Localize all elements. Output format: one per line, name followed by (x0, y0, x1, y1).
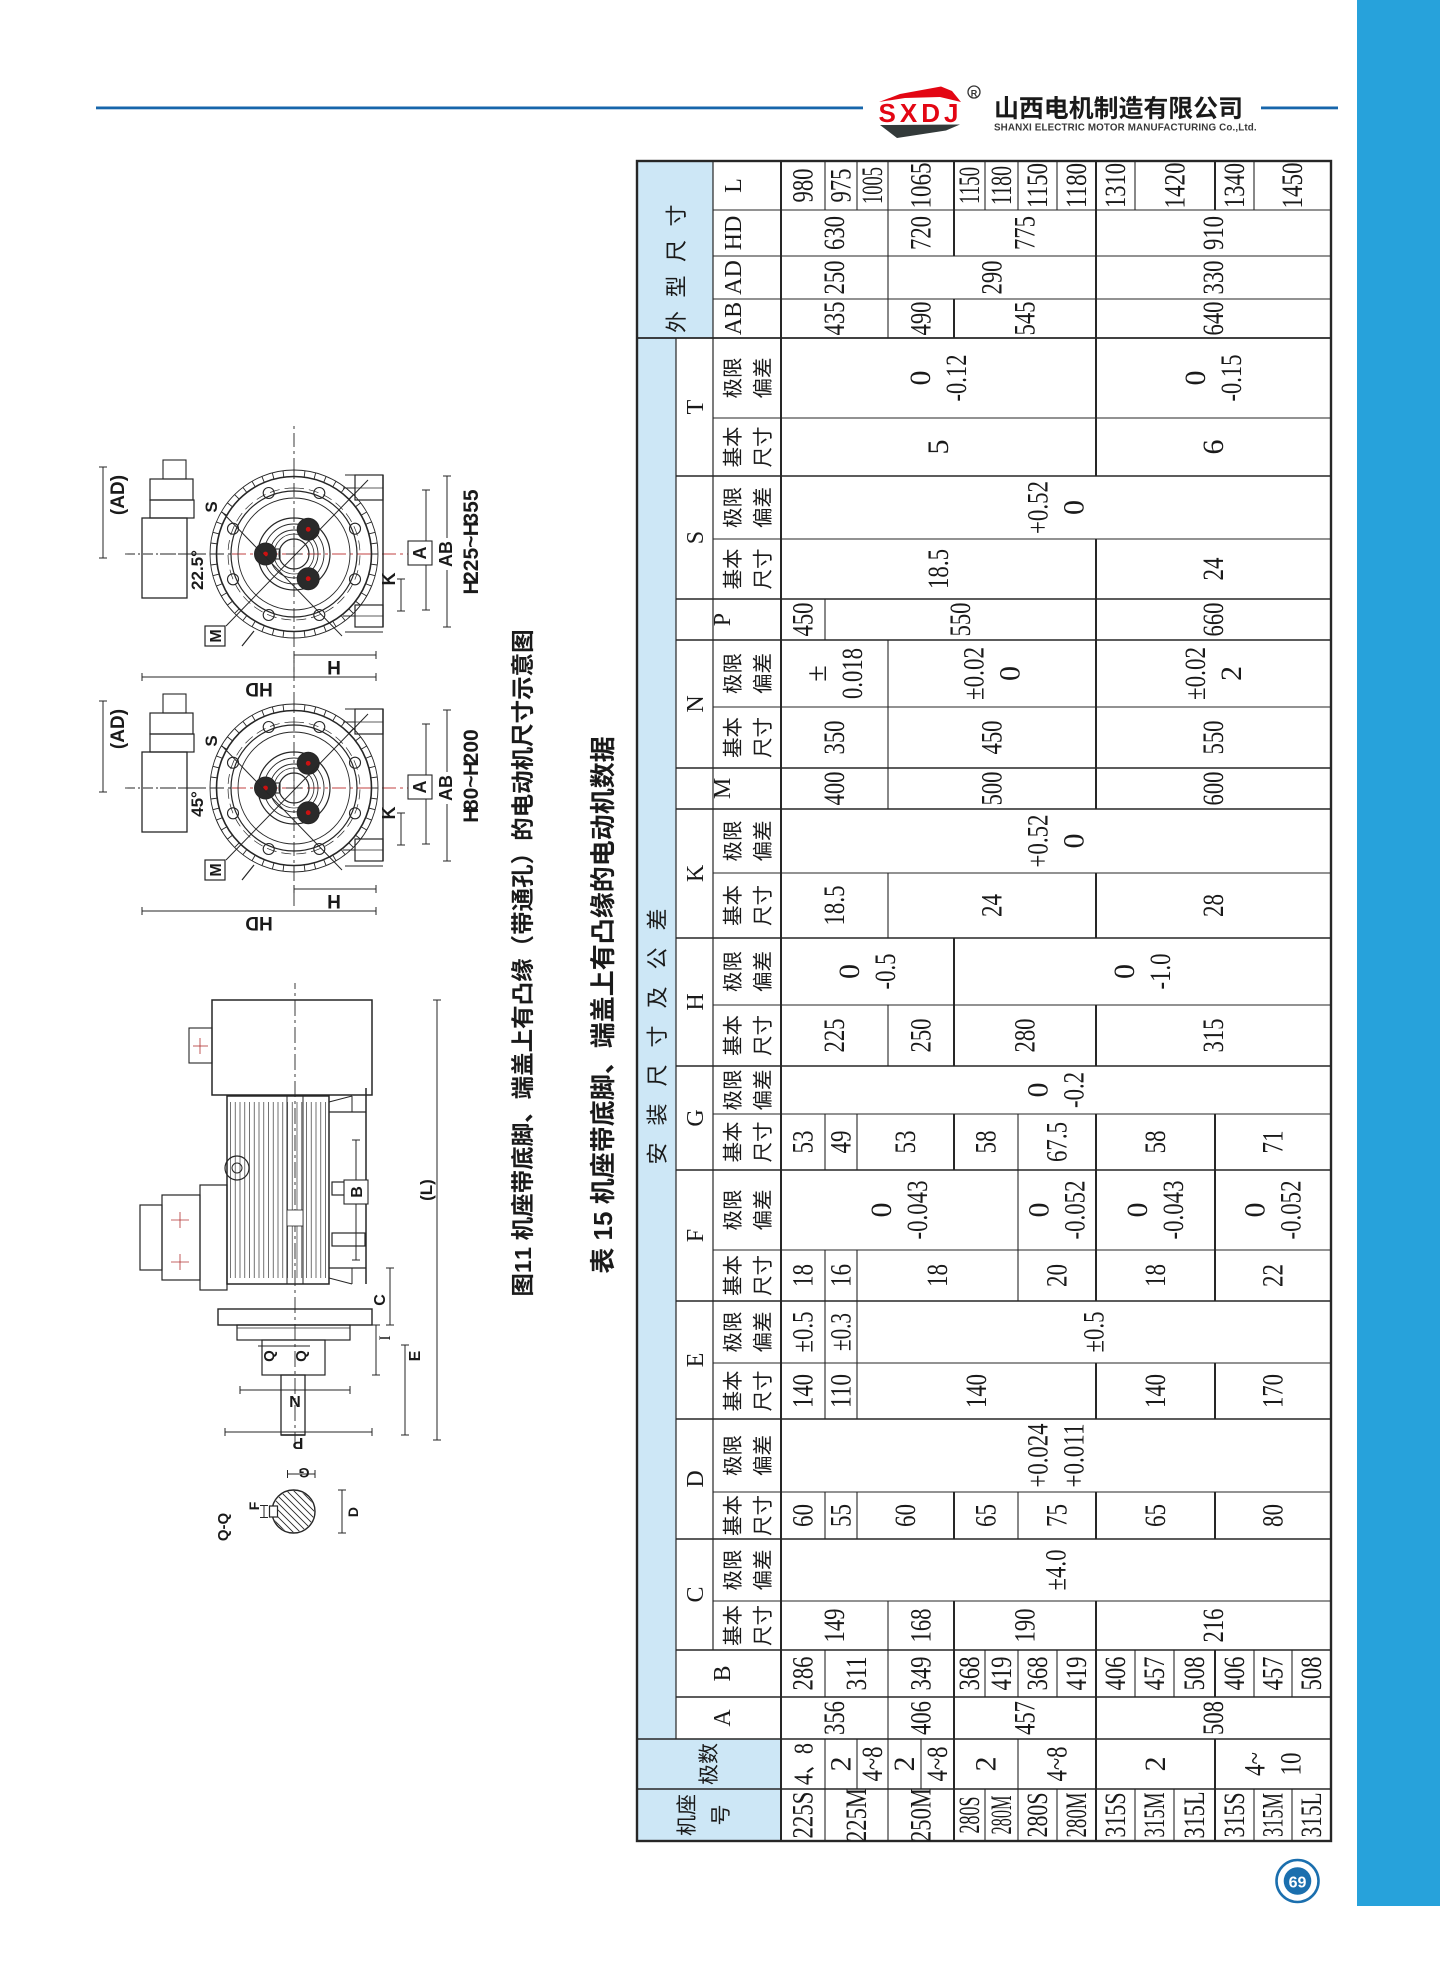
svg-text:±0.02: ±0.02 (958, 647, 991, 700)
svg-text:4~8: 4~8 (1041, 1747, 1074, 1782)
svg-text:M: M (208, 629, 225, 642)
svg-text:58: 58 (970, 1131, 1003, 1154)
svg-text:250: 250 (905, 1019, 938, 1053)
svg-text:419: 419 (1060, 1657, 1093, 1691)
svg-text:-0.5: -0.5 (869, 954, 902, 990)
svg-text:A: A (410, 547, 430, 560)
svg-text:Q: Q (261, 1350, 278, 1362)
svg-text:80: 80 (1257, 1504, 1290, 1527)
svg-text:K: K (683, 864, 709, 882)
svg-text:0: 0 (1058, 834, 1091, 849)
svg-text:C: C (683, 1586, 709, 1602)
svg-text:5: 5 (588, 1212, 618, 1226)
svg-text:16: 16 (825, 1264, 858, 1287)
svg-text:75: 75 (1041, 1504, 1074, 1527)
svg-text:250: 250 (818, 261, 851, 295)
svg-text:910: 910 (1197, 216, 1230, 250)
svg-text:8: 8 (789, 1743, 819, 1754)
svg-text:0: 0 (865, 1203, 898, 1218)
svg-text:225M: 225M (840, 1788, 873, 1842)
svg-text:A: A (410, 781, 430, 794)
svg-text:1150: 1150 (953, 167, 986, 204)
svg-text:N: N (683, 695, 709, 712)
svg-text:T: T (683, 399, 709, 414)
svg-text:0: 0 (460, 741, 483, 753)
svg-text:0: 0 (1058, 500, 1091, 515)
svg-text:F: F (683, 1229, 709, 1242)
svg-text:E: E (683, 1353, 709, 1368)
svg-text:315S: 315S (1218, 1793, 1251, 1838)
svg-text:630: 630 (818, 216, 851, 250)
svg-text:170: 170 (1257, 1374, 1290, 1408)
svg-text:225: 225 (818, 1019, 851, 1053)
svg-text:18.5: 18.5 (922, 549, 955, 589)
svg-text:18: 18 (921, 1264, 954, 1287)
svg-text:550: 550 (1197, 721, 1230, 755)
svg-text:0: 0 (904, 371, 937, 386)
svg-text:640: 640 (1197, 302, 1230, 336)
svg-text:D: D (683, 1470, 709, 1487)
svg-text:4~: 4~ (1239, 1752, 1272, 1776)
svg-text:I: I (377, 1335, 394, 1340)
svg-text:Q: Q (293, 1350, 310, 1362)
svg-text:1005: 1005 (856, 167, 889, 204)
svg-text:2: 2 (460, 753, 483, 765)
svg-text:G: G (298, 1465, 309, 1481)
svg-text:18: 18 (1139, 1264, 1172, 1287)
svg-text:F: F (246, 1501, 262, 1510)
svg-text:660: 660 (1197, 603, 1230, 637)
svg-text:5: 5 (922, 440, 955, 455)
svg-text:720: 720 (905, 216, 938, 250)
svg-text:18.5: 18.5 (818, 886, 851, 926)
svg-text:457: 457 (1257, 1657, 1290, 1691)
svg-text:±0.02: ±0.02 (1179, 647, 1212, 700)
svg-text:280S: 280S (1021, 1793, 1054, 1838)
svg-text:975: 975 (825, 169, 858, 203)
svg-text:286: 286 (787, 1657, 820, 1691)
svg-text:0: 0 (1239, 1203, 1272, 1218)
svg-text:2: 2 (1139, 1757, 1172, 1772)
svg-text:0: 0 (1179, 371, 1212, 386)
svg-text:H: H (327, 890, 341, 911)
svg-text:45°: 45° (188, 791, 207, 817)
svg-text:3: 3 (460, 513, 483, 525)
svg-text:AB: AB (436, 541, 456, 567)
svg-text:2: 2 (1215, 666, 1248, 681)
svg-text:600: 600 (1197, 772, 1230, 806)
svg-text:508: 508 (1197, 1701, 1230, 1735)
svg-text:-0.052: -0.052 (1059, 1181, 1092, 1240)
svg-text:1: 1 (510, 1260, 536, 1273)
svg-text:D: D (345, 1507, 361, 1517)
svg-text:315L: 315L (1295, 1793, 1328, 1838)
svg-text:190: 190 (1009, 1609, 1042, 1643)
svg-text:58: 58 (1139, 1131, 1172, 1154)
svg-text:4~8: 4~8 (921, 1747, 954, 1782)
svg-text:0.018: 0.018 (836, 648, 869, 699)
svg-text:HD: HD (245, 678, 272, 699)
svg-text:0: 0 (833, 964, 866, 979)
svg-text:0: 0 (460, 729, 483, 741)
svg-text:0: 0 (1022, 1083, 1055, 1098)
svg-text:(L): (L) (417, 1179, 436, 1201)
svg-text:508: 508 (1295, 1657, 1328, 1691)
svg-text:4: 4 (789, 1773, 819, 1785)
svg-text:500: 500 (976, 772, 1009, 806)
svg-text:1180: 1180 (985, 166, 1018, 205)
svg-text:R: R (971, 89, 978, 99)
svg-text:1180: 1180 (1060, 163, 1093, 208)
svg-text:5: 5 (460, 489, 483, 501)
svg-text:AB: AB (721, 302, 747, 335)
svg-text:20: 20 (1041, 1264, 1074, 1287)
svg-text:67.5: 67.5 (1041, 1122, 1074, 1162)
svg-text:419: 419 (985, 1657, 1018, 1691)
svg-text:550: 550 (944, 603, 977, 637)
svg-text:-0.2: -0.2 (1058, 1072, 1091, 1108)
svg-text:330: 330 (1197, 261, 1230, 295)
svg-text:406: 406 (1218, 1657, 1251, 1691)
svg-text:S: S (202, 501, 221, 512)
svg-text:1310: 1310 (1099, 163, 1132, 208)
svg-text:22: 22 (1257, 1264, 1290, 1287)
svg-text:S: S (683, 531, 709, 544)
svg-text:SXDJ: SXDJ (879, 98, 963, 128)
svg-text:C: C (372, 1294, 389, 1306)
svg-text:2: 2 (460, 571, 483, 583)
svg-text:+0.024: +0.024 (1022, 1424, 1055, 1488)
svg-text:22.5°: 22.5° (188, 550, 207, 590)
svg-text:65: 65 (970, 1504, 1003, 1527)
svg-text:1150: 1150 (1021, 163, 1054, 208)
svg-text:2: 2 (825, 1757, 858, 1772)
svg-text:545: 545 (1009, 302, 1042, 336)
svg-text:140: 140 (1139, 1374, 1172, 1408)
svg-text:M: M (710, 778, 736, 799)
svg-text:290: 290 (976, 261, 1009, 295)
svg-text:-0.043: -0.043 (901, 1181, 934, 1240)
svg-text:H: H (327, 656, 341, 677)
svg-text:349: 349 (905, 1657, 938, 1691)
svg-text:368: 368 (1021, 1657, 1054, 1691)
svg-text:K: K (379, 573, 399, 586)
svg-text:2: 2 (460, 560, 483, 572)
svg-text:315M: 315M (1257, 1793, 1290, 1837)
svg-text:±0.5: ±0.5 (787, 1312, 820, 1353)
svg-text:311: 311 (840, 1657, 873, 1691)
svg-text:5: 5 (460, 548, 483, 560)
svg-text:69: 69 (1289, 1875, 1307, 1892)
svg-text:24: 24 (1197, 558, 1230, 581)
svg-text:53: 53 (889, 1131, 922, 1154)
svg-text:1065: 1065 (905, 163, 938, 209)
svg-text:K: K (379, 807, 399, 820)
svg-text:-1.0: -1.0 (1144, 954, 1177, 990)
svg-text:0: 0 (460, 788, 483, 800)
svg-text:Q-Q: Q-Q (215, 1513, 232, 1542)
svg-text:53: 53 (787, 1131, 820, 1154)
svg-text:HD: HD (721, 216, 747, 251)
svg-text:HD: HD (245, 912, 272, 933)
svg-text:280S: 280S (953, 1797, 986, 1834)
svg-text:315S: 315S (1099, 1793, 1132, 1838)
svg-text:450: 450 (976, 721, 1009, 755)
svg-text:1340: 1340 (1218, 163, 1251, 208)
svg-text:-0.15: -0.15 (1215, 355, 1248, 402)
svg-text:±: ± (800, 665, 833, 681)
svg-text:350: 350 (818, 721, 851, 755)
svg-text:280: 280 (1009, 1019, 1042, 1053)
svg-text:356: 356 (818, 1701, 851, 1735)
svg-text:±0.5: ±0.5 (1078, 1312, 1111, 1353)
svg-text:SHANXI ELECTRIC MOTOR MANUF: SHANXI ELECTRIC MOTOR MANUFACTURING Co.,… (994, 123, 1257, 134)
svg-text:280M: 280M (1060, 1793, 1093, 1838)
svg-text:1450: 1450 (1276, 163, 1309, 209)
svg-text:N: N (289, 1392, 301, 1409)
svg-text:P: P (710, 613, 736, 626)
svg-text:400: 400 (818, 772, 851, 806)
svg-text:980: 980 (787, 169, 820, 203)
svg-text:65: 65 (1139, 1504, 1172, 1527)
svg-text:225S: 225S (787, 1792, 820, 1839)
svg-text:508: 508 (1178, 1657, 1211, 1691)
svg-text:0: 0 (1023, 1203, 1056, 1218)
svg-text:149: 149 (818, 1609, 851, 1643)
svg-text:2: 2 (888, 1757, 921, 1772)
svg-text:6: 6 (1197, 440, 1230, 455)
svg-text:(AD): (AD) (108, 475, 129, 515)
svg-text:315M: 315M (1138, 1793, 1171, 1838)
svg-text:0: 0 (1121, 1203, 1154, 1218)
svg-text:+0.52: +0.52 (1022, 481, 1055, 534)
svg-text:457: 457 (1009, 1701, 1042, 1735)
svg-text:0: 0 (1108, 964, 1141, 979)
svg-text:8: 8 (460, 799, 483, 811)
svg-text:A: A (710, 1709, 736, 1727)
svg-text:216: 216 (1197, 1609, 1230, 1643)
svg-text:+0.011: +0.011 (1058, 1424, 1091, 1488)
svg-text:5: 5 (460, 501, 483, 513)
svg-text:S: S (202, 735, 221, 746)
svg-text:24: 24 (976, 894, 1009, 917)
svg-text:+0.52: +0.52 (1022, 815, 1055, 868)
svg-text:168: 168 (905, 1609, 938, 1643)
svg-text:G: G (683, 1109, 709, 1126)
svg-text:-0.12: -0.12 (940, 355, 973, 402)
svg-text:315: 315 (1197, 1019, 1230, 1053)
svg-text:10: 10 (1275, 1753, 1308, 1776)
svg-text:60: 60 (889, 1504, 922, 1527)
svg-text:(AD): (AD) (108, 709, 129, 749)
svg-text:-0.052: -0.052 (1275, 1181, 1308, 1240)
svg-text:457: 457 (1138, 1657, 1171, 1691)
svg-text:B: B (710, 1665, 736, 1681)
svg-text:280M: 280M (985, 1796, 1018, 1835)
svg-text:±0.3: ±0.3 (825, 1313, 858, 1351)
svg-text:1420: 1420 (1159, 163, 1192, 209)
svg-text:368: 368 (953, 1657, 986, 1691)
svg-text:490: 490 (905, 302, 938, 336)
svg-text:18: 18 (787, 1264, 820, 1287)
svg-text:H: H (683, 993, 709, 1010)
svg-text:140: 140 (787, 1374, 820, 1408)
svg-text:775: 775 (1009, 216, 1042, 250)
svg-text:1: 1 (588, 1226, 618, 1240)
svg-text:-0.043: -0.043 (1157, 1181, 1190, 1240)
svg-text:71: 71 (1257, 1131, 1290, 1154)
svg-text:250M: 250M (905, 1788, 938, 1842)
svg-text:P: P (292, 1434, 303, 1451)
svg-text:0: 0 (994, 666, 1027, 681)
svg-text:28: 28 (1197, 894, 1230, 917)
svg-text:L: L (721, 178, 747, 193)
svg-text:~: ~ (460, 536, 483, 548)
svg-text:49: 49 (825, 1131, 858, 1154)
svg-text:55: 55 (825, 1504, 858, 1527)
svg-text:2: 2 (970, 1757, 1003, 1772)
svg-text:435: 435 (818, 302, 851, 336)
svg-text:AD: AD (721, 260, 747, 295)
svg-text:60: 60 (787, 1504, 820, 1527)
svg-text:4~8: 4~8 (856, 1747, 889, 1782)
svg-text:406: 406 (905, 1701, 938, 1735)
svg-text:1: 1 (510, 1247, 536, 1260)
svg-text:110: 110 (825, 1374, 858, 1408)
svg-text:E: E (407, 1350, 424, 1361)
svg-text:±4.0: ±4.0 (1040, 1550, 1073, 1591)
svg-text:450: 450 (787, 603, 820, 637)
svg-text:140: 140 (960, 1374, 993, 1408)
svg-text:AB: AB (436, 775, 456, 801)
svg-text:315L: 315L (1178, 1792, 1211, 1839)
svg-text:B: B (349, 1186, 366, 1198)
svg-text:~: ~ (460, 775, 483, 787)
svg-text:406: 406 (1099, 1657, 1132, 1691)
svg-text:M: M (208, 863, 225, 876)
